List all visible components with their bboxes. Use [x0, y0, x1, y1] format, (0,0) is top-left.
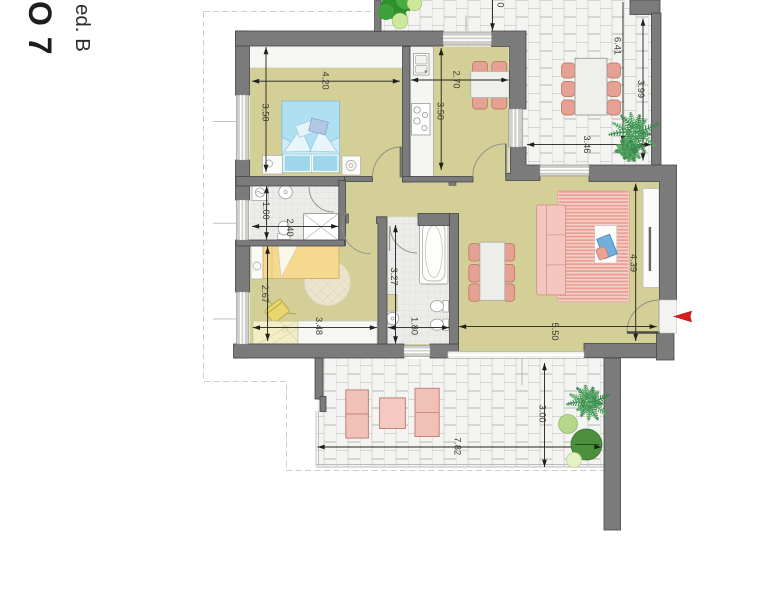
svg-text:1.60: 1.60 [261, 202, 271, 220]
svg-text:2.70: 2.70 [452, 70, 462, 88]
svg-text:3.48: 3.48 [314, 317, 324, 335]
svg-text:0: 0 [496, 2, 506, 7]
svg-text:3.00: 3.00 [537, 405, 547, 423]
svg-text:3.99: 3.99 [636, 80, 646, 98]
svg-text:4.20: 4.20 [321, 72, 331, 90]
svg-text:O 7: O 7 [22, 1, 58, 56]
svg-text:2.40: 2.40 [285, 219, 295, 237]
svg-text:3.27: 3.27 [389, 267, 399, 285]
svg-text:4.39: 4.39 [629, 254, 639, 272]
svg-text:6.41: 6.41 [613, 37, 623, 55]
svg-text:5.50: 5.50 [550, 322, 560, 340]
svg-text:3.46: 3.46 [582, 135, 592, 153]
svg-text:7.82: 7.82 [453, 437, 463, 455]
svg-text:3.50: 3.50 [436, 102, 446, 120]
svg-text:2.67: 2.67 [260, 285, 270, 303]
svg-text:3.50: 3.50 [261, 103, 271, 121]
svg-text:ed. B: ed. B [71, 4, 94, 52]
svg-text:1.80: 1.80 [410, 317, 420, 335]
